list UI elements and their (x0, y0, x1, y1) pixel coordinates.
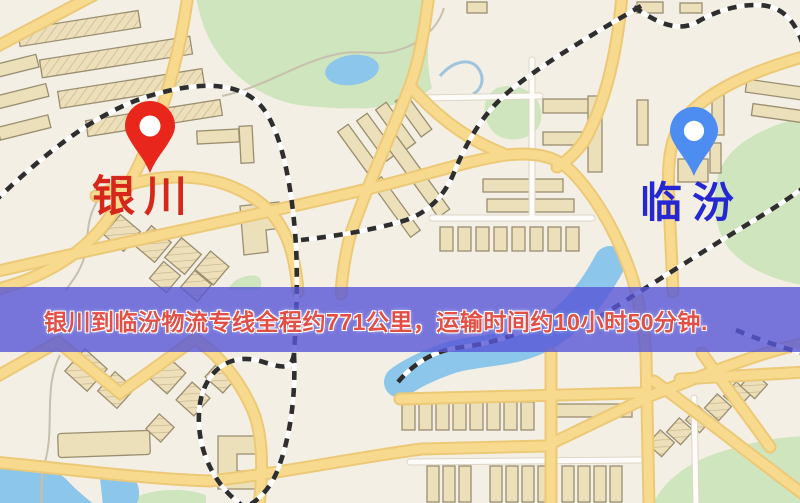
map-canvas[interactable] (0, 0, 800, 503)
destination-pin-hole (684, 121, 704, 141)
map-image: 银川 临汾 银川到临汾物流专线全程约771公里，运输时间约10小时50分钟. (0, 0, 800, 503)
route-info-banner: 银川到临汾物流专线全程约771公里，运输时间约10小时50分钟. (0, 287, 800, 352)
origin-city-label: 银川 (92, 176, 196, 219)
route-info-text: 银川到临汾物流专线全程约771公里，运输时间约10小时50分钟. (0, 303, 708, 337)
destination-city-label: 临汾 (640, 182, 744, 224)
origin-pin-hole (140, 116, 161, 137)
